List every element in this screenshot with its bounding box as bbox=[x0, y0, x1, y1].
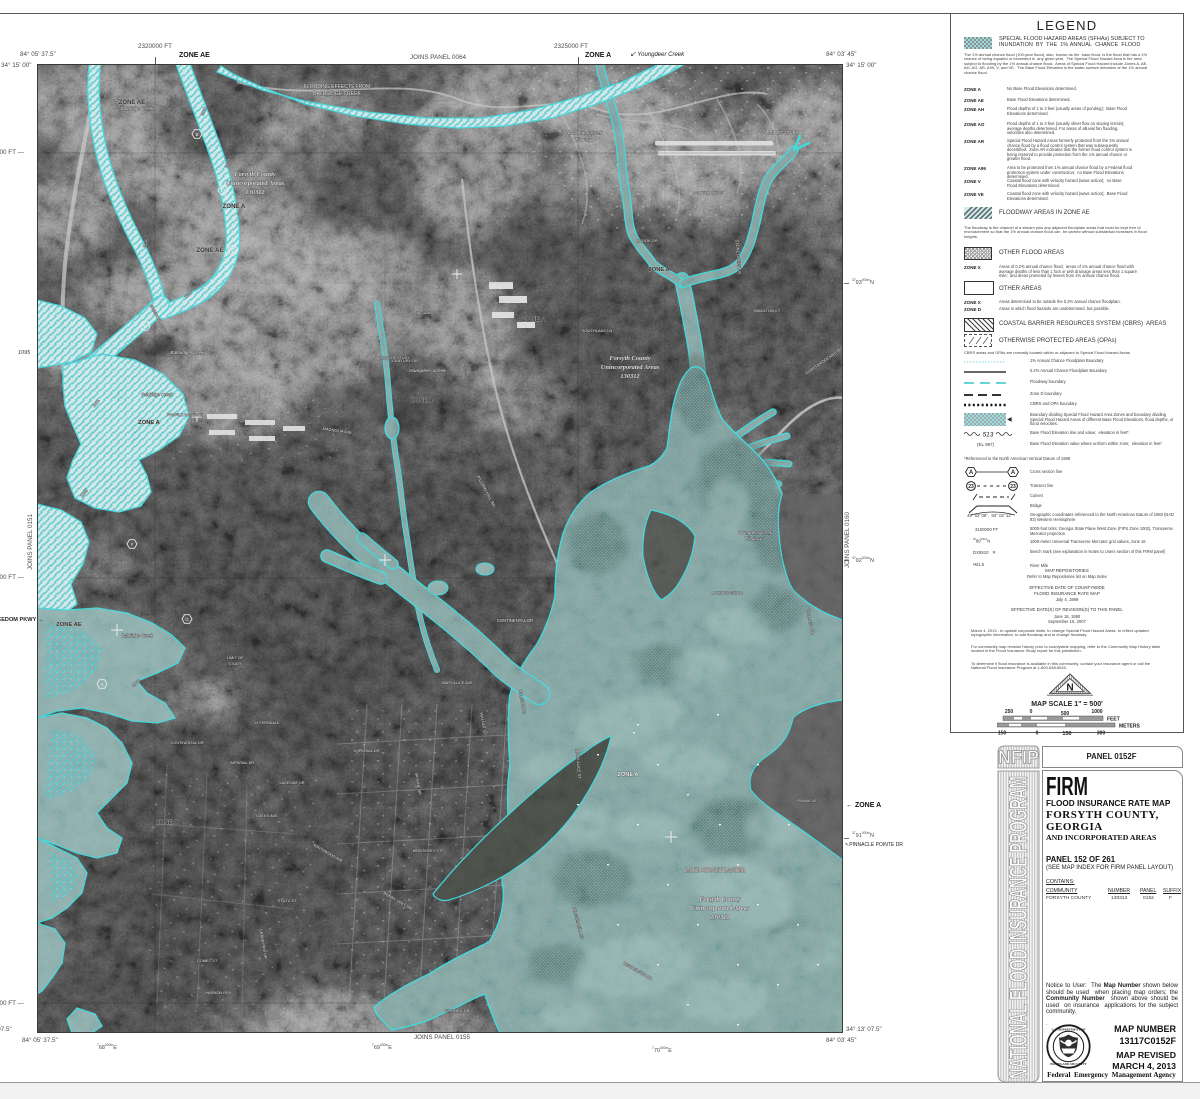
svg-text:FIR TREE DR: FIR TREE DR bbox=[444, 1008, 469, 1013]
svg-text:MARY ALICE AVE: MARY ALICE AVE bbox=[442, 681, 473, 685]
svg-text:Forsyth County: Forsyth County bbox=[234, 171, 276, 178]
svg-text:NATIONAL FLOOD INSURANCE PROGR: NATIONAL FLOOD INSURANCE PROGRAM bbox=[1005, 776, 1033, 1079]
svg-text:G: G bbox=[185, 617, 189, 622]
svg-text:23: 23 bbox=[968, 484, 974, 490]
svg-text:0: 0 bbox=[1036, 731, 1039, 737]
svg-text:BALDRIDGE CREEK: BALDRIDGE CREEK bbox=[313, 91, 361, 97]
svg-text:LIMIT OF STUDY: LIMIT OF STUDY bbox=[766, 130, 799, 135]
svg-text:SOUTHLAKE CT: SOUTHLAKE CT bbox=[694, 190, 725, 195]
svg-text:SOUTHLAKE LN: SOUTHLAKE LN bbox=[582, 328, 613, 333]
svg-text:JAGUAR ST: JAGUAR ST bbox=[416, 310, 439, 315]
svg-text:CATES AVE: CATES AVE bbox=[256, 813, 278, 818]
svg-text:ZONE A: ZONE A bbox=[522, 316, 546, 323]
svg-text:LAKE RIDGE DR: LAKE RIDGE DR bbox=[712, 590, 743, 595]
svg-text:Forsyth County: Forsyth County bbox=[609, 355, 651, 362]
svg-text:JJ FERNDALE: JJ FERNDALE bbox=[254, 721, 280, 725]
svg-text:LAKESIDE DR: LAKESIDE DR bbox=[279, 781, 304, 785]
svg-text:IMPERIAL DR: IMPERIAL DR bbox=[230, 761, 254, 765]
svg-text:MONTEREY ST: MONTEREY ST bbox=[413, 848, 442, 853]
svg-text:LAKE SIDNEY LANIER: LAKE SIDNEY LANIER bbox=[684, 868, 746, 874]
svg-text:ZONE A: ZONE A bbox=[648, 267, 670, 273]
svg-text:FLOODING EFFECTS FROM: FLOODING EFFECTS FROM bbox=[304, 84, 370, 90]
svg-text:Baldridge Creek: Baldridge Creek bbox=[121, 106, 155, 111]
svg-text:Unincorporated Areas: Unincorporated Areas bbox=[691, 905, 750, 912]
svg-text:0: 0 bbox=[1030, 709, 1033, 715]
svg-text:HOMELAND SECURITY: HOMELAND SECURITY bbox=[1050, 1062, 1087, 1066]
svg-text:ZONE AE: ZONE AE bbox=[196, 247, 223, 254]
svg-text:ZONE AE: ZONE AE bbox=[56, 622, 82, 628]
svg-text:METERS: METERS bbox=[1119, 724, 1141, 730]
svg-text:150: 150 bbox=[1062, 731, 1071, 736]
svg-text:COMET ST: COMET ST bbox=[197, 958, 218, 963]
svg-text:STUTZ ST: STUTZ ST bbox=[277, 898, 297, 903]
svg-text:513: 513 bbox=[983, 432, 994, 439]
svg-text:BROOK DR: BROOK DR bbox=[636, 238, 657, 243]
svg-text:STUDY: STUDY bbox=[228, 661, 242, 666]
svg-text:Baldridge Creek: Baldridge Creek bbox=[171, 350, 205, 355]
svg-text:ZONE AE: ZONE AE bbox=[119, 100, 145, 106]
svg-text:ZONE A: ZONE A bbox=[138, 420, 160, 426]
svg-text:HAMILTON CT: HAMILTON CT bbox=[754, 308, 781, 313]
svg-text:PINNACLE: PINNACLE bbox=[798, 799, 817, 803]
svg-text:F: F bbox=[131, 542, 134, 547]
svg-text:U.S. DEPARTMENT OF: U.S. DEPARTMENT OF bbox=[1052, 1028, 1086, 1032]
svg-text:Tributary 8: Tributary 8 bbox=[575, 137, 596, 142]
svg-text:Youngdeer Creek: Youngdeer Creek bbox=[738, 530, 773, 535]
svg-text:Unincorporated Areas: Unincorporated Areas bbox=[601, 364, 660, 371]
svg-text:NFIP: NFIP bbox=[998, 748, 1039, 768]
svg-text:FEET: FEET bbox=[1107, 717, 1120, 723]
svg-text:CENTURY DR: CENTURY DR bbox=[392, 358, 418, 363]
svg-text:Unincorporated Areas: Unincorporated Areas bbox=[226, 180, 285, 187]
svg-text:IMPERIAL DR: IMPERIAL DR bbox=[354, 748, 380, 753]
svg-text:Youngdeer Creek: Youngdeer Creek bbox=[408, 368, 446, 374]
svg-text:ZONE A: ZONE A bbox=[156, 820, 178, 826]
svg-text:130312: 130312 bbox=[245, 189, 265, 196]
svg-text:23: 23 bbox=[1010, 484, 1016, 490]
svg-text:Forsyth County: Forsyth County bbox=[699, 896, 741, 903]
svg-text:A: A bbox=[1011, 470, 1016, 476]
svg-text:A: A bbox=[969, 470, 974, 476]
svg-text:Bald Ridge Creek: Bald Ridge Creek bbox=[568, 130, 603, 135]
svg-text:ZONE A: ZONE A bbox=[411, 398, 433, 404]
svg-text:250: 250 bbox=[1005, 709, 1014, 715]
svg-text:LIMIT OF: LIMIT OF bbox=[227, 655, 244, 660]
svg-text:130312: 130312 bbox=[710, 914, 730, 921]
svg-text:CONTINENTAL DR: CONTINENTAL DR bbox=[497, 618, 533, 623]
svg-text:300: 300 bbox=[1097, 731, 1106, 737]
svg-text:Baldridge Creek: Baldridge Creek bbox=[141, 392, 173, 397]
svg-text:CONTINENTAL DR: CONTINENTAL DR bbox=[171, 741, 204, 745]
svg-text:ZONE A: ZONE A bbox=[618, 772, 639, 778]
svg-text:130312: 130312 bbox=[620, 373, 640, 380]
svg-text:N: N bbox=[1066, 683, 1073, 694]
svg-text:Tributary 1: Tributary 1 bbox=[745, 536, 766, 541]
svg-text:150: 150 bbox=[998, 731, 1007, 737]
svg-text:1000: 1000 bbox=[1091, 709, 1102, 715]
svg-text:B: B bbox=[195, 132, 198, 137]
svg-text:E: E bbox=[143, 324, 146, 329]
svg-text:HARMON RD: HARMON RD bbox=[205, 991, 229, 995]
svg-text:PROFILE BASELINE: PROFILE BASELINE bbox=[167, 413, 203, 417]
svg-text:Baldridge Creek: Baldridge Creek bbox=[121, 633, 153, 638]
